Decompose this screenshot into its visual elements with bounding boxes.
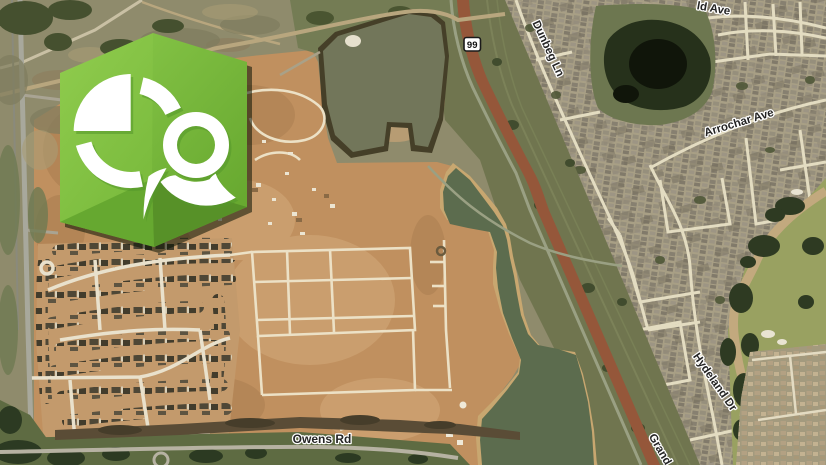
svg-text:Owens Rd: Owens Rd [293,432,352,446]
svg-text:99: 99 [467,40,478,51]
